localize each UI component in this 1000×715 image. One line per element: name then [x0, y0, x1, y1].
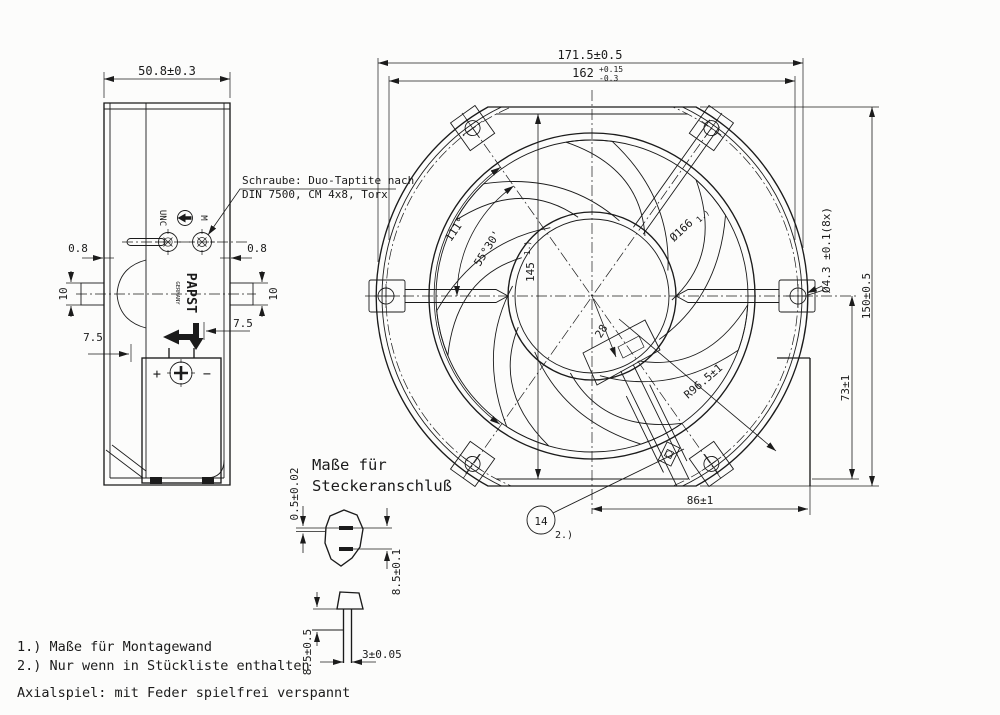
- dim-10-left: 10: [57, 287, 70, 300]
- fan-technical-drawing: 50.8±0.3 UNC M Schraub: [0, 0, 1000, 715]
- dim-pin-width: 3±0.05: [362, 648, 402, 661]
- dim-10-right: 10: [267, 287, 280, 300]
- balloon-footnote: 2.): [555, 530, 573, 541]
- dim-145: 145: [524, 262, 537, 282]
- dim-08-left: 0.8: [68, 242, 88, 255]
- balloon-number: 14: [534, 515, 548, 528]
- dim-75-left: 7.5: [83, 331, 103, 344]
- dim-r965: R96.5±1: [681, 361, 725, 401]
- screw-note-line1: Schraube: Duo-Taptite nach: [242, 174, 414, 187]
- dim-145-footnote: 1.): [523, 241, 532, 255]
- dim-side-width: 50.8±0.3: [138, 64, 196, 78]
- dim-75-right: 7.5: [233, 317, 253, 330]
- airflow-arrow-left-icon: [163, 330, 194, 345]
- dim-28: 28: [592, 322, 610, 340]
- plug-side-outline: [337, 592, 363, 609]
- front-view: 171.5±0.5 162 +0.15 -0.3 150±0.5 73±1 Ø4…: [365, 48, 879, 541]
- dim-height: 150±0.5: [860, 273, 873, 319]
- connector-detail: Maße für Steckeranschluß 0.5±0.02 8.5±0.…: [288, 456, 452, 675]
- plug-front-outline: [325, 510, 363, 566]
- brand-country: GERMANY: [174, 281, 180, 305]
- drawing-sheet: 50.8±0.3 UNC M Schraub: [0, 0, 1000, 715]
- side-view: 50.8±0.3 UNC M Schraub: [57, 64, 414, 485]
- dim-mount-tol-plus: +0.15: [599, 65, 623, 74]
- dim-bolt-circle-footnote: 1.): [695, 208, 712, 224]
- thread-label-unc: UNC: [157, 210, 167, 226]
- dim-73: 73±1: [839, 375, 852, 402]
- dim-mount-tol-minus: -0.3: [599, 74, 618, 83]
- dim-angle-111: 111°: [443, 215, 469, 244]
- note-axialspiel: Axialspiel: mit Feder spielfrei verspann…: [17, 685, 350, 701]
- terminal-minus-label: −: [203, 366, 211, 382]
- thread-label-m: M: [198, 215, 208, 221]
- screw-note-line2: DIN 7500, CM 4x8, Torx: [242, 188, 388, 201]
- terminal-box-corner: [777, 358, 810, 486]
- dim-pin-offset: 0.5±0.02: [288, 468, 301, 521]
- dim-mount-spacing: 162: [572, 66, 594, 80]
- dim-86: 86±1: [687, 494, 714, 507]
- airflow-direction-icon: [178, 211, 193, 226]
- dim-mounting-holes: Ø4.3 ±0.1(8x): [820, 207, 833, 293]
- connector-title-line1: Maße für: [312, 456, 387, 474]
- adjustment-screw-icon: [167, 359, 195, 387]
- dim-bolt-circle: Ø166: [667, 217, 695, 245]
- note-stueckliste: 2.) Nur wenn in Stückliste enthalten: [17, 658, 310, 674]
- note-montagewand: 1.) Maße für Montagewand: [17, 639, 212, 655]
- impeller-blades: [417, 118, 764, 458]
- connector-title-line2: Steckeranschluß: [312, 477, 452, 495]
- dim-angle-5530: 55°30': [471, 228, 503, 269]
- dim-08-right: 0.8: [247, 242, 267, 255]
- brand-logo: PAPST: [183, 273, 199, 314]
- terminal-plus-label: +: [153, 366, 161, 382]
- dim-pin-spacing: 8.5±0.1: [390, 549, 403, 595]
- dim-outer-width: 171.5±0.5: [557, 48, 622, 62]
